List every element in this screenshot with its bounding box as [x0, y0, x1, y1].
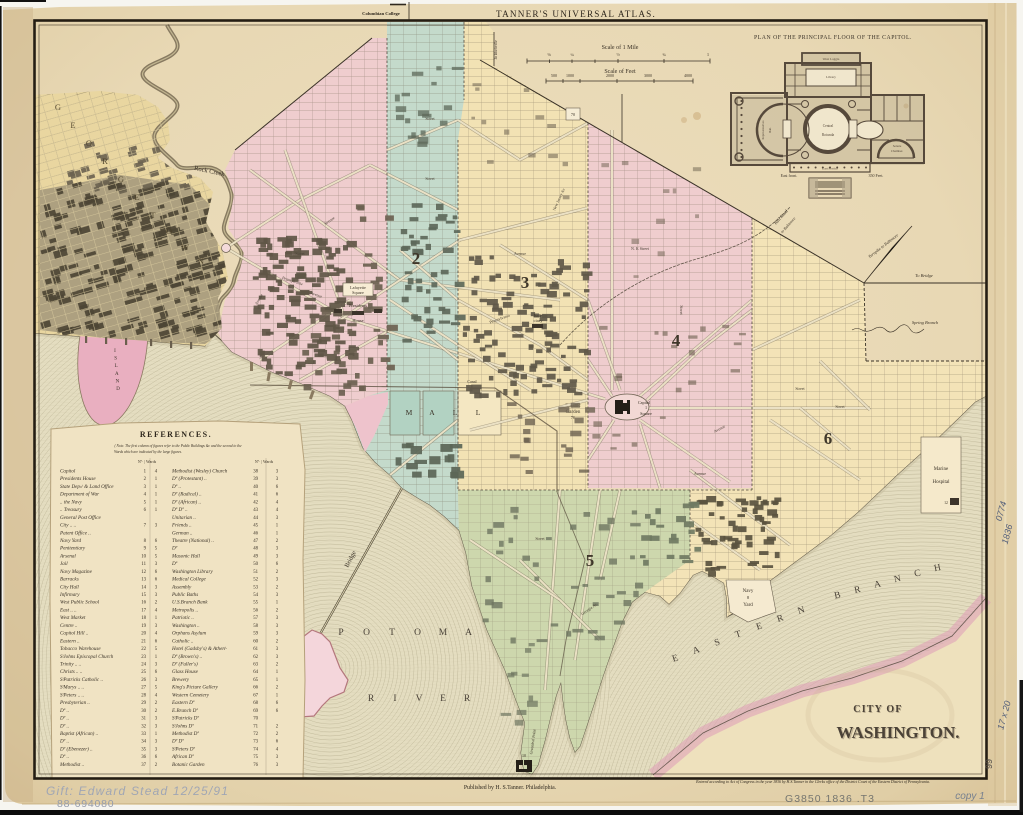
svg-text:Published by H. S.Tanner. Phil: Published by H. S.Tanner. Philadelphia.	[464, 785, 557, 791]
svg-text:West Loggia: West Loggia	[823, 57, 840, 61]
svg-text:1: 1	[707, 52, 709, 57]
svg-text:65: 65	[253, 678, 258, 683]
svg-text:Washington Library: Washington Library	[172, 569, 213, 575]
svg-text:60: 60	[253, 639, 258, 644]
svg-text:4: 4	[672, 331, 681, 350]
svg-text:35: 35	[141, 747, 146, 752]
svg-text:73: 73	[253, 740, 258, 745]
svg-text:99: 99	[984, 759, 994, 769]
svg-text:Canal: Canal	[467, 379, 477, 384]
svg-text:N. K Street: N. K Street	[631, 246, 650, 251]
svg-text:30: 30	[141, 709, 146, 714]
svg-text:Eastern Dº: Eastern Dº	[171, 700, 195, 706]
svg-text:51: 51	[253, 570, 258, 575]
svg-text:72: 72	[253, 732, 258, 737]
svg-text:Medical College: Medical College	[171, 577, 207, 583]
svg-text:R: R	[464, 694, 471, 704]
svg-text:48: 48	[253, 547, 258, 552]
svg-text:Navy Magazine: Navy Magazine	[59, 569, 93, 575]
svg-text:57: 57	[253, 616, 258, 621]
svg-text:Dº (Protestant) ..: Dº (Protestant) ..	[171, 475, 207, 482]
svg-text:40: 40	[253, 485, 258, 490]
svg-text:76: 76	[253, 763, 258, 768]
svg-text:22: 22	[141, 647, 146, 652]
svg-text:Navy Yard: Navy Yard	[59, 538, 81, 544]
svg-text:Methodist Dº: Methodist Dº	[171, 731, 199, 737]
svg-text:55: 55	[253, 601, 258, 606]
svg-text:58: 58	[253, 624, 258, 629]
svg-text:SᵗPatricks Dº: SᵗPatricks Dº	[172, 716, 199, 722]
svg-text:PLAN OF THE PRINCIPAL FLOOR OF: PLAN OF THE PRINCIPAL FLOOR OF THE CAPIT…	[754, 35, 912, 41]
svg-text:59: 59	[253, 632, 258, 637]
svg-text:70: 70	[253, 717, 258, 722]
svg-text:Friends ..: Friends ..	[171, 523, 192, 529]
svg-text:Street: Street	[425, 116, 435, 121]
svg-text:3: 3	[521, 273, 530, 292]
svg-text:Street: Street	[535, 536, 545, 541]
svg-text:54: 54	[253, 593, 258, 598]
svg-text:Spring Branch: Spring Branch	[912, 320, 939, 325]
svg-text:Public Baths: Public Baths	[171, 592, 198, 598]
svg-text:Yard: Yard	[743, 603, 753, 608]
svg-text:Central: Central	[823, 124, 834, 128]
svg-text:E.Branch Dº: E.Branch Dº	[171, 708, 198, 714]
svg-text:R: R	[102, 156, 108, 166]
svg-text:City Hall: City Hall	[60, 584, 79, 590]
svg-text:City .. ..: City .. ..	[60, 523, 76, 529]
svg-text:Street: Street	[795, 386, 805, 391]
svg-text:SᵗPeters Dº: SᵗPeters Dº	[172, 746, 195, 752]
svg-text:Tobacco Warehouse: Tobacco Warehouse	[60, 646, 101, 652]
svg-text:6: 6	[824, 429, 833, 448]
svg-text:Dº ..: Dº ..	[59, 754, 69, 760]
svg-text:SᵗJohns Episcopal Church: SᵗJohns Episcopal Church	[60, 654, 114, 660]
svg-text:Chamber.: Chamber.	[891, 149, 904, 153]
svg-text:1: 1	[645, 405, 647, 410]
svg-text:Gift: Edward Stead 12/25/: Gift: Edward Stead 12/25/91	[46, 784, 229, 798]
svg-text:Dº: Dº	[171, 546, 178, 552]
svg-text:V: V	[416, 694, 423, 704]
svg-text:To Rockville: To Rockville	[493, 40, 498, 60]
svg-text:M: M	[439, 628, 448, 638]
svg-text:Penitentiary: Penitentiary	[59, 546, 86, 552]
svg-text:M: M	[406, 408, 413, 417]
svg-text:Dº ..: Dº ..	[171, 484, 181, 490]
svg-text:17: 17	[141, 608, 146, 613]
svg-text:L: L	[453, 408, 458, 417]
svg-text:Unitarian ..: Unitarian ..	[172, 515, 196, 521]
svg-text:46: 46	[253, 531, 258, 536]
svg-text:Washington ..: Washington ..	[172, 623, 200, 629]
svg-text:Dº Dº ..: Dº Dº ..	[171, 507, 188, 513]
svg-text:18: 18	[141, 616, 146, 621]
svg-text:38: 38	[253, 470, 258, 475]
svg-text:P: P	[338, 628, 343, 638]
svg-text:Navy: Navy	[743, 589, 754, 594]
svg-text:66: 66	[253, 686, 258, 691]
svg-text:Baptist (African) ..: Baptist (African) ..	[60, 730, 98, 737]
svg-text:36: 36	[141, 755, 146, 760]
svg-text:A: A	[115, 372, 119, 377]
svg-text:German ..: German ..	[172, 530, 193, 536]
svg-text:R: R	[368, 694, 375, 704]
svg-text:A: A	[429, 408, 435, 417]
svg-text:Hospital: Hospital	[933, 480, 951, 485]
svg-text:11: 11	[141, 562, 146, 567]
svg-text:E: E	[134, 192, 139, 202]
svg-text:Centre ..: Centre ..	[60, 623, 78, 629]
svg-text:Representatives: Representatives	[761, 120, 765, 140]
svg-text:TANNER'S UNIVERSAL ATLAS.: TANNER'S UNIVERSAL ATLAS.	[496, 9, 656, 19]
svg-text:S: S	[114, 357, 117, 362]
svg-text:I: I	[393, 694, 396, 704]
svg-text:Columbian College: Columbian College	[362, 11, 400, 16]
svg-text:Avenue: Avenue	[514, 251, 526, 256]
svg-text:SᵗPeters .. ..: SᵗPeters .. ..	[60, 692, 84, 698]
svg-text:16: 16	[141, 601, 146, 606]
svg-text:Hall.: Hall.	[768, 127, 772, 133]
svg-text:12: 12	[141, 570, 146, 575]
svg-text:SᵗPatricks Catholic ..: SᵗPatricks Catholic ..	[60, 677, 103, 683]
svg-text:African Dº: African Dº	[171, 753, 194, 760]
svg-text:East .. ..: East .. ..	[59, 607, 77, 613]
svg-text:24: 24	[141, 663, 146, 668]
svg-text:1000: 1000	[566, 73, 574, 78]
svg-text:45: 45	[253, 524, 258, 529]
svg-text:West Public School: West Public School	[60, 600, 100, 606]
svg-text:70: 70	[571, 112, 575, 117]
svg-text:WASHINGTON.: WASHINGTON.	[837, 723, 960, 742]
svg-text:.. the Navy: .. the Navy	[60, 499, 83, 505]
svg-text:N: N	[116, 379, 120, 384]
svg-text:68: 68	[253, 701, 258, 706]
svg-text:71: 71	[253, 724, 258, 729]
svg-text:O: O	[166, 226, 172, 236]
svg-text:Botanic Garden: Botanic Garden	[172, 762, 205, 768]
svg-text:19: 19	[141, 624, 146, 629]
svg-text:56: 56	[253, 608, 258, 613]
svg-text:Presidents House: Presidents House	[59, 476, 96, 482]
svg-text:32: 32	[141, 724, 146, 729]
svg-text:10: 10	[141, 554, 146, 559]
svg-text:25: 25	[141, 670, 146, 675]
svg-text:CITY OF: CITY OF	[853, 704, 902, 715]
svg-text:A: A	[465, 628, 472, 638]
svg-text:Dº ..: Dº ..	[59, 723, 69, 729]
svg-text:Methodist ..: Methodist ..	[59, 762, 84, 768]
svg-text:Infirmary: Infirmary	[59, 591, 80, 598]
svg-text:Catholic ..: Catholic ..	[172, 638, 193, 644]
svg-text:Avenue: Avenue	[694, 471, 706, 476]
svg-text:Nº· | Wards: Nº· | Wards	[138, 459, 157, 464]
svg-text:Street: Street	[835, 404, 845, 409]
svg-text:53: 53	[253, 585, 258, 590]
svg-text:Street: Street	[425, 176, 435, 181]
svg-text:49: 49	[253, 554, 258, 559]
svg-text:W: W	[181, 242, 189, 252]
svg-text:To Bridge: To Bridge	[915, 273, 933, 278]
svg-text:Dº (Ebenezer) ..: Dº (Ebenezer) ..	[59, 745, 93, 752]
svg-text:Arsenal: Arsenal	[59, 553, 76, 559]
svg-text:Metropolis ..: Metropolis ..	[171, 607, 198, 613]
svg-text:E: E	[440, 694, 446, 704]
svg-text:42: 42	[253, 500, 258, 505]
svg-text:G: G	[55, 102, 61, 112]
svg-text:L: L	[476, 408, 481, 417]
svg-text:39: 39	[253, 477, 258, 482]
svg-text:21: 21	[141, 639, 146, 644]
svg-text:47: 47	[253, 539, 258, 544]
svg-text:Dº ..: Dº ..	[59, 739, 69, 745]
svg-text:King's Picture Gallery: King's Picture Gallery	[171, 685, 219, 691]
svg-text:Jail: Jail	[60, 561, 68, 567]
svg-text:52: 52	[253, 578, 258, 583]
svg-text:E: E	[70, 120, 75, 130]
svg-text:20: 20	[141, 632, 146, 637]
svg-text:61: 61	[253, 647, 258, 652]
svg-text:34: 34	[141, 740, 146, 745]
svg-text:3000: 3000	[644, 73, 652, 78]
svg-text:SᵗJohns Dº: SᵗJohns Dº	[172, 723, 194, 729]
svg-text:N: N	[198, 256, 204, 266]
svg-text:Nº· | Wards: Nº· | Wards	[255, 459, 274, 464]
svg-text:Barracks: Barracks	[60, 577, 79, 583]
svg-text:Street: Street	[679, 305, 684, 315]
svg-text:Dº (Fuller's): Dº (Fuller's)	[171, 661, 198, 668]
svg-text:O: O	[86, 138, 92, 148]
svg-text:Capitol Hill ..: Capitol Hill ..	[60, 631, 88, 637]
svg-text:East front.: East front.	[781, 173, 798, 178]
svg-text:D: D	[116, 387, 120, 392]
svg-text:Christs .. ..: Christs .. ..	[60, 669, 82, 675]
svg-text:Eastern ..: Eastern ..	[59, 638, 80, 644]
svg-text:2000: 2000	[606, 73, 614, 78]
svg-text:L: L	[115, 364, 118, 369]
svg-text:House: House	[352, 318, 363, 323]
svg-text:26: 26	[141, 678, 146, 683]
svg-text:Patent Office ..: Patent Office ..	[59, 529, 91, 536]
svg-text:4000: 4000	[684, 73, 692, 78]
svg-text:28: 28	[141, 693, 146, 698]
svg-text:Dº Dº: Dº Dº	[171, 739, 184, 745]
svg-text:Marine: Marine	[934, 467, 949, 472]
svg-text:Department of War: Department of War	[59, 491, 99, 498]
svg-text:64: 64	[253, 670, 258, 675]
svg-text:23: 23	[141, 655, 146, 660]
svg-text:Scale of 1 Mile: Scale of 1 Mile	[602, 44, 639, 51]
svg-text:REFERENCES.: REFERENCES.	[140, 430, 212, 439]
svg-text:14: 14	[141, 585, 146, 590]
svg-text:12: 12	[944, 501, 948, 505]
svg-text:Entered according to Act of Co: Entered according to Act of Congress in …	[695, 780, 930, 784]
svg-text:27: 27	[141, 686, 146, 691]
svg-text:Methodist (Wesley) Church: Methodist (Wesley) Church	[171, 468, 228, 475]
svg-text:SᵗMarys .. ..: SᵗMarys .. ..	[60, 685, 84, 691]
svg-text:Brewery: Brewery	[172, 677, 190, 683]
svg-text:43: 43	[253, 508, 258, 513]
svg-text:U.S.Branch Bank: U.S.Branch Bank	[172, 600, 208, 606]
svg-text:copy 1: copy 1	[955, 791, 984, 802]
svg-text:15: 15	[141, 593, 146, 598]
svg-text:75: 75	[253, 755, 258, 760]
svg-text:G: G	[118, 174, 124, 184]
svg-text:T: T	[389, 628, 395, 638]
svg-text:31: 31	[141, 717, 146, 722]
svg-text:13: 13	[141, 578, 146, 583]
svg-text:29: 29	[141, 701, 146, 706]
svg-text:ciary: ciary	[534, 318, 544, 323]
svg-text:Dº ..: Dº ..	[59, 708, 69, 714]
svg-text:33: 33	[141, 732, 146, 737]
svg-text:Capitol: Capitol	[60, 469, 76, 475]
svg-text:Glass House: Glass House	[172, 669, 199, 675]
svg-text:Orphans Asylum: Orphans Asylum	[172, 631, 206, 637]
svg-text:41: 41	[253, 493, 258, 498]
svg-text:Presbyterian ..: Presbyterian ..	[59, 700, 90, 706]
svg-text:G3850 1836 .T3: G3850 1836 .T3	[785, 793, 875, 805]
svg-text:88-694080: 88-694080	[57, 798, 114, 810]
svg-text:5: 5	[586, 551, 595, 570]
svg-text:Dº (Radical) ..: Dº (Radical) ..	[171, 491, 202, 498]
svg-text:Street: Street	[295, 251, 305, 256]
svg-text:500: 500	[551, 73, 557, 78]
svg-text:Masonic Hall: Masonic Hall	[171, 553, 200, 559]
svg-text:Library: Library	[826, 75, 836, 79]
svg-text:Theatre (National) ..: Theatre (National) ..	[172, 537, 214, 544]
svg-text:.. Treasury: .. Treasury	[60, 507, 82, 513]
svg-text:East Portico: East Portico	[822, 167, 838, 171]
svg-text:67: 67	[253, 693, 258, 698]
svg-text:O: O	[414, 628, 421, 638]
svg-text:2: 2	[412, 249, 421, 268]
svg-text:T: T	[150, 210, 156, 220]
svg-text:37: 37	[141, 763, 146, 768]
svg-text:State Depₕᵗ & Land Office: State Depₕᵗ & Land Office	[60, 483, 114, 490]
svg-text:Assembly: Assembly	[171, 584, 192, 590]
svg-text:69: 69	[253, 709, 258, 714]
svg-text:Square: Square	[640, 411, 652, 416]
svg-text:62: 62	[253, 655, 258, 660]
svg-text:O: O	[363, 628, 370, 638]
svg-text:Wards which are indicated by t: Wards which are indicated by the large f…	[114, 450, 182, 454]
svg-text:350 Feet.: 350 Feet.	[869, 173, 884, 178]
svg-text:Western Cemetery: Western Cemetery	[172, 692, 210, 698]
svg-text:Senate: Senate	[893, 144, 902, 148]
svg-text:General Post Office: General Post Office	[60, 514, 101, 521]
svg-text:( Note. The first column of fi: ( Note. The first column of figures refe…	[114, 444, 242, 448]
svg-text:63: 63	[253, 663, 258, 668]
svg-text:Hotel (Gadsby's) & Athenᵗ·: Hotel (Gadsby's) & Athenᵗ·	[171, 645, 228, 652]
svg-text:Square: Square	[352, 290, 364, 295]
svg-text:Presidents: Presidents	[349, 303, 367, 308]
svg-text:West Market: West Market	[60, 615, 86, 621]
svg-text:44: 44	[253, 516, 258, 521]
svg-text:Rotunda: Rotunda	[822, 133, 835, 137]
svg-text:Dº ..: Dº ..	[59, 716, 69, 722]
svg-text:74: 74	[253, 747, 258, 752]
svg-text:50: 50	[253, 562, 258, 567]
svg-text:Patriotic ..: Patriotic ..	[171, 615, 194, 621]
svg-text:Dº (African) ..: Dº (African) ..	[171, 498, 201, 505]
svg-text:10: 10	[522, 753, 526, 758]
svg-text:Dº: Dº	[171, 561, 178, 567]
svg-text:Trinity .. ..: Trinity .. ..	[60, 662, 81, 668]
svg-text:Dº (Brown's) ..: Dº (Brown's) ..	[171, 653, 202, 660]
